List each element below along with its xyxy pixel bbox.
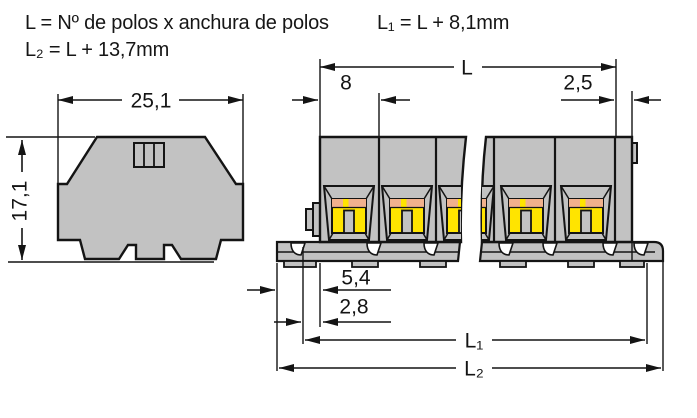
pole-terminal [561, 186, 611, 240]
formula-pole-length: L = Nº de polos x anchura de polos [25, 12, 329, 34]
formula-l2: L₂ = L + 13,7mm [25, 39, 169, 61]
dim-label-pitch: 8 [340, 72, 352, 95]
side-view: L 8 2,5 5,4 2,8 [247, 57, 663, 381]
marker-slot [134, 143, 164, 167]
formula-l1: L₁ = L + 8,1mm [377, 12, 509, 35]
pole-terminal [324, 186, 374, 240]
dim-label-rail-offset-inner: 2,8 [339, 296, 368, 319]
formula-l2-line: L₂ = L + 13,7mm [25, 39, 169, 62]
side-step-outer [306, 209, 313, 230]
pole-terminal [382, 186, 432, 240]
dim-label-L1: L₁ [465, 330, 484, 353]
dim-label-endplate: 2,5 [563, 72, 592, 95]
dim-label-L2: L₂ [464, 358, 484, 381]
dim-label-L: L [461, 57, 473, 80]
drawing-stage: L = Nº de polos x anchura de polos L₁ = … [0, 0, 697, 413]
dim-label-rail-offset: 5,4 [341, 267, 371, 290]
dim-label-height: 17,1 [9, 181, 32, 222]
header-formulas: L = Nº de polos x anchura de polos L₁ = … [25, 12, 685, 35]
dim-label-width: 25,1 [131, 90, 172, 113]
front-view: 25,1 17,1 [6, 90, 243, 263]
pole-terminal [501, 186, 551, 240]
